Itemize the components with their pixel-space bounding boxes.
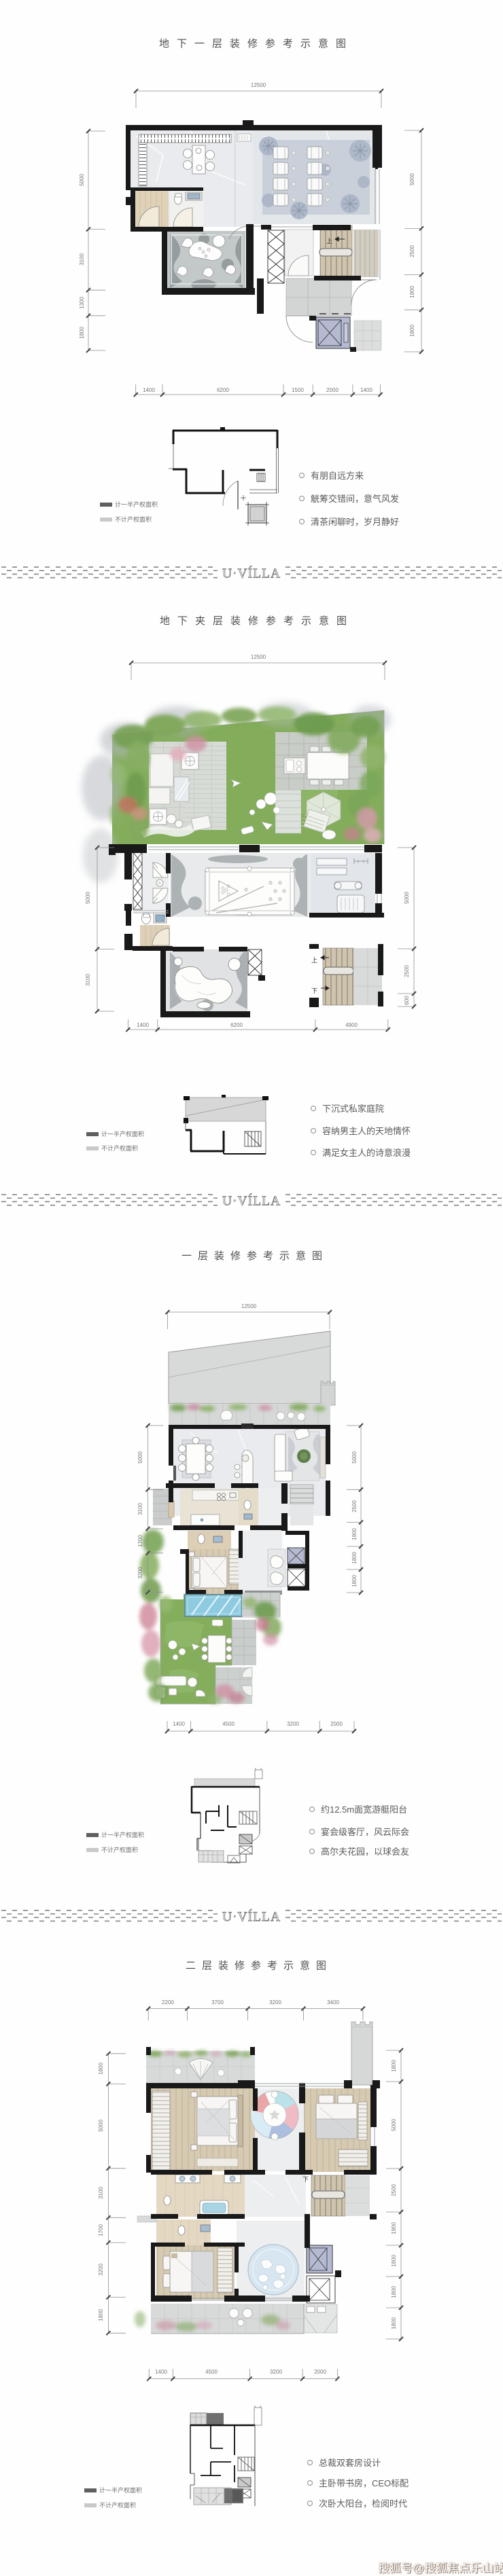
svg-text:2200: 2200 [162, 1999, 174, 2006]
svg-text:1800: 1800 [391, 2317, 397, 2329]
svg-text:1700: 1700 [98, 2224, 104, 2236]
svg-text:3200: 3200 [287, 1721, 299, 1727]
svg-text:5000: 5000 [409, 173, 415, 185]
svg-text:1700: 1700 [137, 1535, 143, 1547]
svg-text:2000: 2000 [330, 1721, 343, 1727]
svg-text:4500: 4500 [222, 1721, 235, 1727]
svg-text:1400: 1400 [143, 387, 155, 393]
svg-text:5000: 5000 [137, 1451, 143, 1464]
svg-text:5000: 5000 [351, 1451, 358, 1464]
svg-text:下: 下 [311, 987, 317, 994]
svg-text:6200: 6200 [217, 387, 229, 393]
svg-text:5000: 5000 [79, 174, 85, 186]
svg-text:3200: 3200 [270, 2369, 282, 2375]
svg-text:12500: 12500 [251, 654, 266, 660]
svg-text:2500: 2500 [351, 1500, 358, 1512]
svg-text:上: 上 [311, 957, 317, 964]
svg-text:5000: 5000 [391, 2119, 397, 2131]
svg-text:1900: 1900 [409, 286, 415, 298]
svg-text:1800: 1800 [351, 1575, 358, 1587]
svg-text:3200: 3200 [137, 1567, 143, 1579]
svg-text:12500: 12500 [251, 82, 266, 88]
svg-text:3200: 3200 [269, 1999, 281, 2006]
svg-text:3100: 3100 [79, 253, 85, 266]
svg-text:3100: 3100 [137, 1503, 143, 1515]
svg-text:U·VÍLLA: U·VÍLLA [222, 1909, 281, 1924]
svg-text:1800: 1800 [79, 327, 85, 339]
svg-text:600: 600 [404, 996, 410, 1005]
svg-text:2000: 2000 [314, 2369, 326, 2375]
svg-text:下: 下 [302, 2176, 309, 2183]
svg-text:1800: 1800 [351, 1552, 358, 1564]
svg-text:1800: 1800 [391, 2255, 397, 2267]
svg-text:U·VÍLLA: U·VÍLLA [222, 1194, 281, 1209]
svg-text:1900: 1900 [391, 2222, 397, 2234]
svg-text:1500: 1500 [292, 387, 304, 393]
svg-text:1400: 1400 [137, 1022, 149, 1028]
svg-text:3700: 3700 [211, 1999, 224, 2006]
svg-text:1800: 1800 [98, 2309, 104, 2321]
svg-text:1900: 1900 [351, 1528, 358, 1540]
svg-text:5000: 5000 [85, 892, 91, 904]
svg-text:2500: 2500 [404, 965, 410, 977]
svg-text:3100: 3100 [98, 2187, 104, 2199]
svg-text:3100: 3100 [85, 974, 91, 986]
svg-text:1400: 1400 [155, 2369, 167, 2375]
svg-text:5000: 5000 [404, 892, 410, 904]
svg-text:3200: 3200 [98, 2264, 104, 2276]
svg-text:1800: 1800 [98, 2063, 104, 2075]
svg-text:4500: 4500 [205, 2369, 218, 2375]
svg-text:2500: 2500 [391, 2184, 397, 2196]
svg-text:2000: 2000 [326, 387, 339, 393]
svg-text:U·VÍLLA: U·VÍLLA [222, 566, 281, 581]
svg-text:5000: 5000 [98, 2120, 104, 2132]
svg-text:1400: 1400 [360, 387, 372, 393]
svg-text:1800: 1800 [409, 325, 415, 337]
svg-text:3400: 3400 [327, 1999, 339, 2006]
svg-text:6200: 6200 [230, 1022, 243, 1028]
svg-text:1400: 1400 [173, 1721, 185, 1727]
svg-text:1300: 1300 [79, 297, 85, 309]
svg-text:1800: 1800 [391, 2060, 397, 2072]
svg-text:4900: 4900 [345, 1022, 358, 1028]
svg-text:2500: 2500 [409, 245, 415, 257]
svg-text:12500: 12500 [241, 1303, 257, 1309]
svg-text:1800: 1800 [391, 2286, 397, 2298]
svg-text:上: 上 [326, 238, 332, 244]
